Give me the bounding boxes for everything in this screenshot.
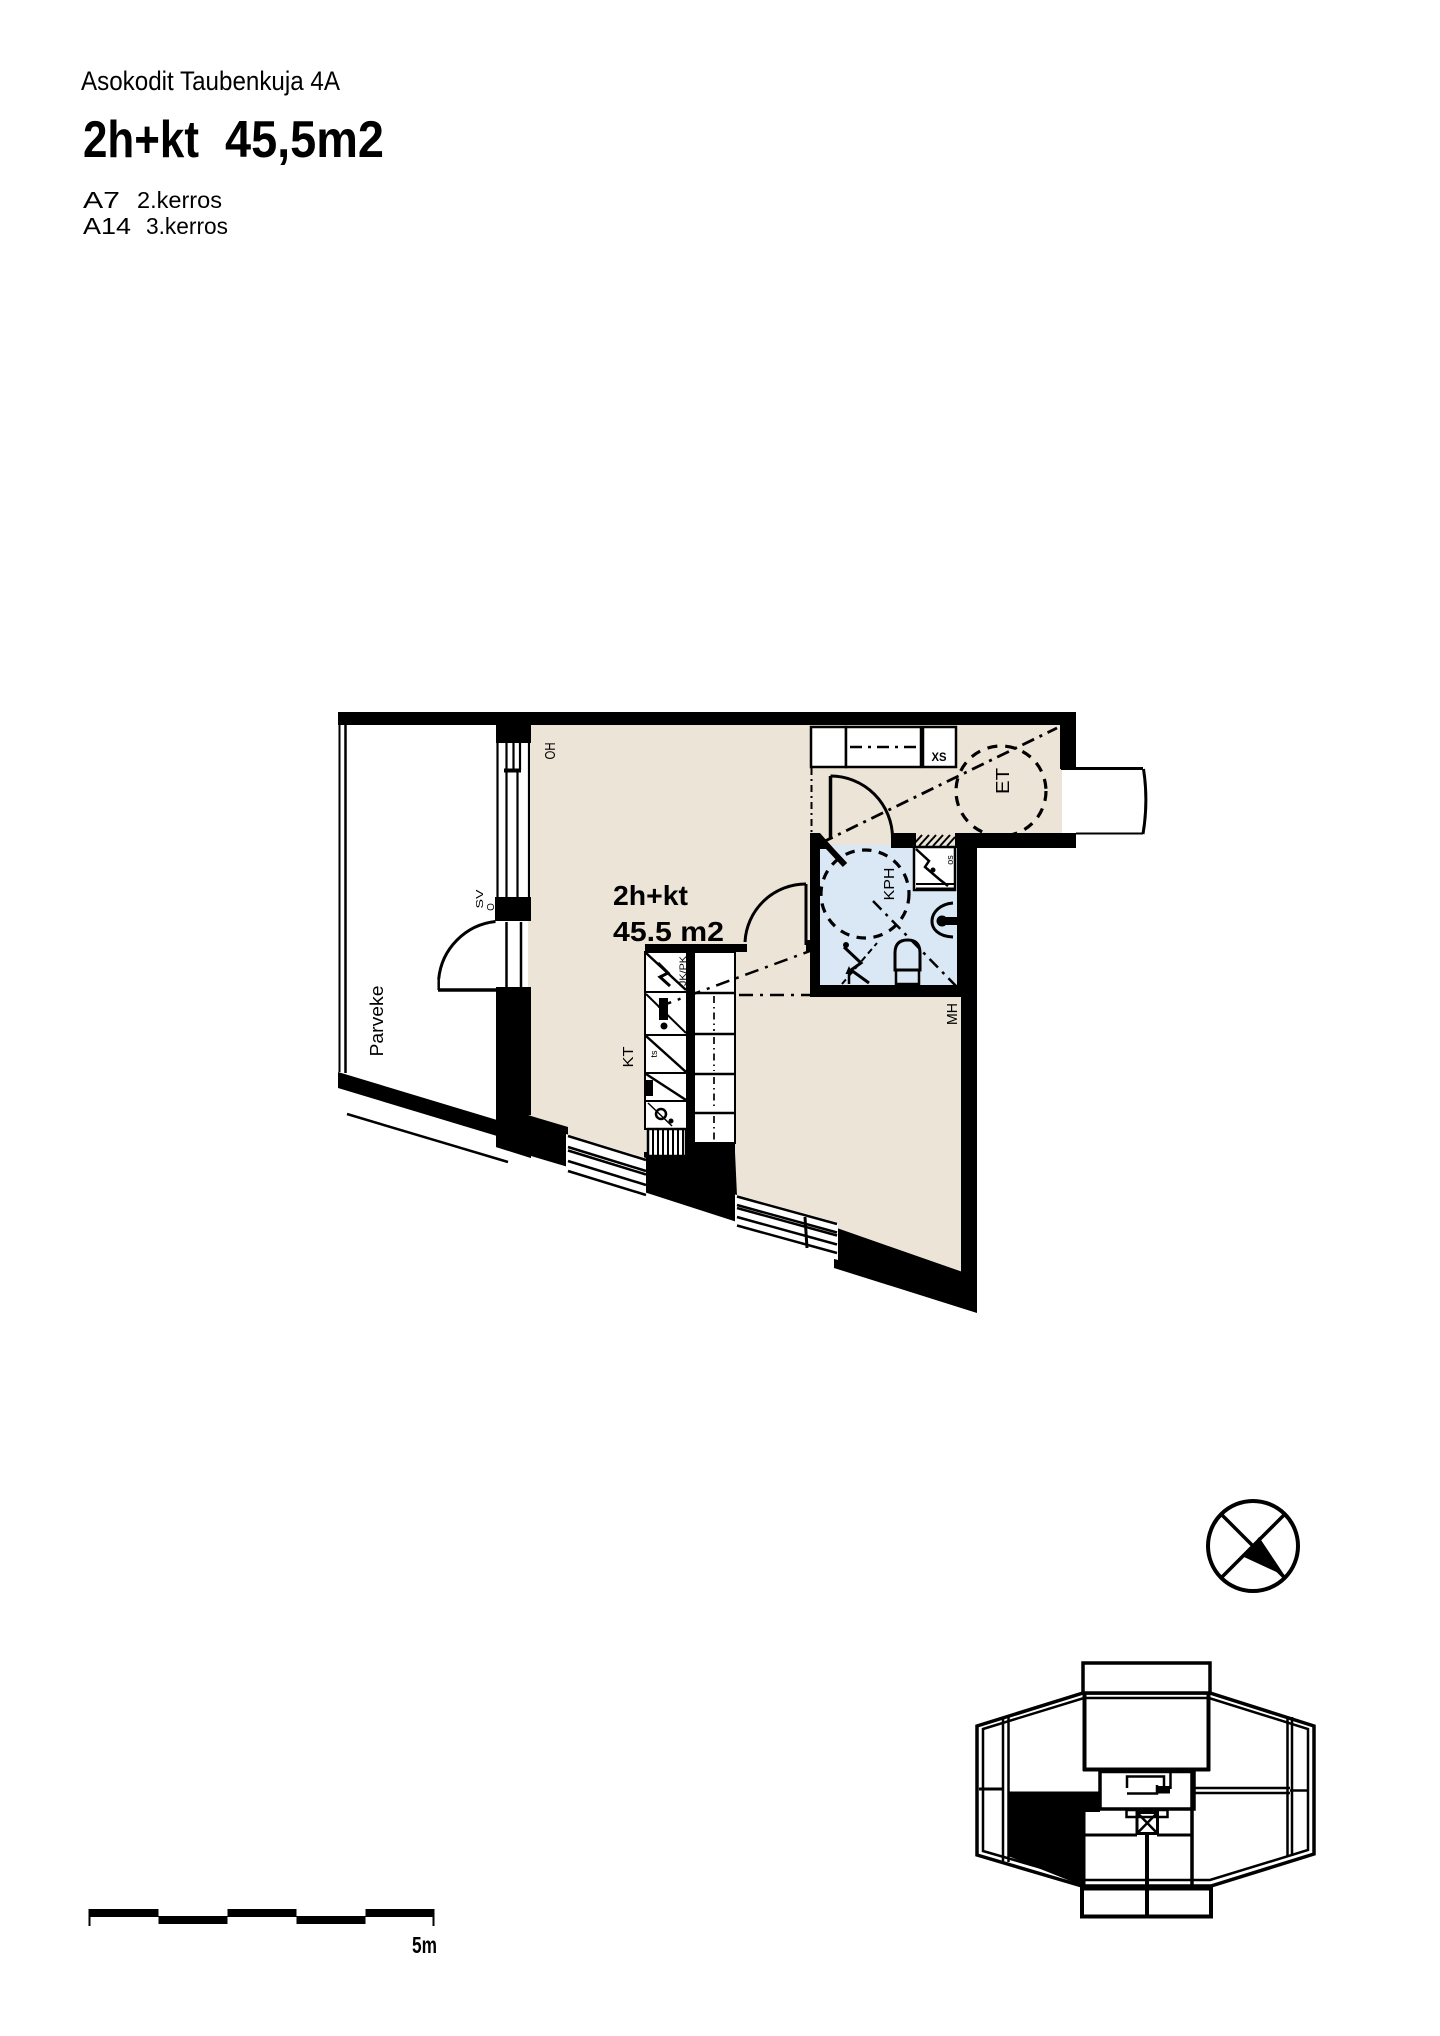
svg-text:2h+kt: 2h+kt <box>613 880 688 911</box>
svg-text:ET: ET <box>993 768 1013 794</box>
svg-text:MH: MH <box>944 1003 961 1025</box>
svg-text:2.kerros: 2.kerros <box>137 187 222 213</box>
svg-text:45,5m2: 45,5m2 <box>225 111 384 169</box>
svg-text:2h+kt: 2h+kt <box>83 111 199 169</box>
svg-text:os: os <box>945 855 955 865</box>
svg-text:Asokodit Taubenkuja 4A: Asokodit Taubenkuja 4A <box>81 66 340 96</box>
svg-text:45.5 m2: 45.5 m2 <box>613 916 724 947</box>
svg-text:5m: 5m <box>412 1932 437 1958</box>
svg-text:XS: XS <box>932 750 947 764</box>
svg-text:3.kerros: 3.kerros <box>146 213 228 239</box>
svg-text:SV: SV <box>475 889 486 908</box>
svg-text:JK/PK: JK/PK <box>678 956 688 986</box>
svg-text:A7: A7 <box>83 187 120 213</box>
svg-text:O: O <box>486 903 497 911</box>
svg-text:OH: OH <box>542 743 559 760</box>
svg-text:A14: A14 <box>83 213 131 239</box>
svg-text:KT: KT <box>620 1047 637 1068</box>
svg-text:Parveke: Parveke <box>367 986 387 1057</box>
svg-text:ts: ts <box>649 1050 659 1058</box>
svg-text:KPH: KPH <box>881 868 898 901</box>
